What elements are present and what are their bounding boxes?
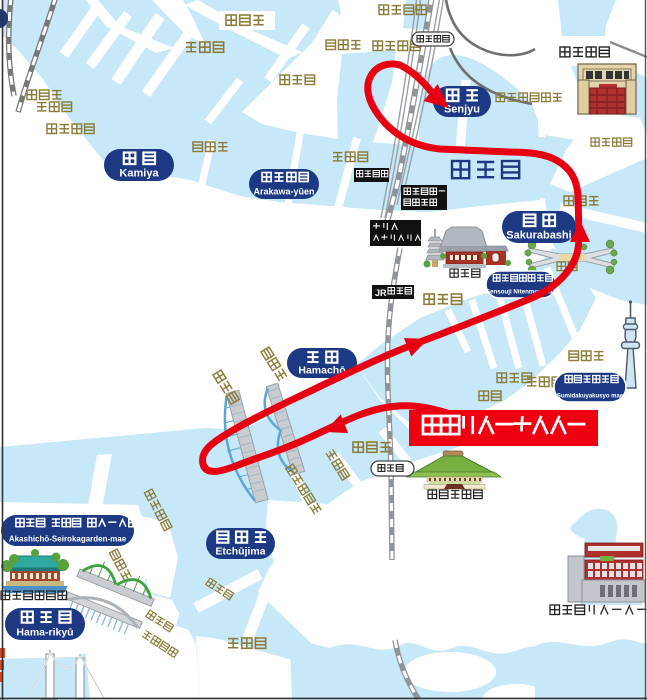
svg-text:Arakawa-yūen: Arakawa-yūen — [253, 187, 314, 197]
svg-text:Senjyu: Senjyu — [444, 104, 480, 116]
svg-text:Etchūjima: Etchūjima — [215, 546, 265, 558]
svg-text:Sakurabashi: Sakurabashi — [506, 230, 571, 242]
svg-text:Akashichō-Seirokagarden-mae: Akashichō-Seirokagarden-mae — [9, 535, 127, 544]
svg-text:Sumidakuyakusyo mae: Sumidakuyakusyo mae — [557, 394, 624, 400]
svg-text:JR: JR — [375, 288, 387, 298]
svg-text:Kamiya: Kamiya — [119, 168, 159, 180]
svg-text:Hama-rikyū: Hama-rikyū — [16, 627, 73, 639]
